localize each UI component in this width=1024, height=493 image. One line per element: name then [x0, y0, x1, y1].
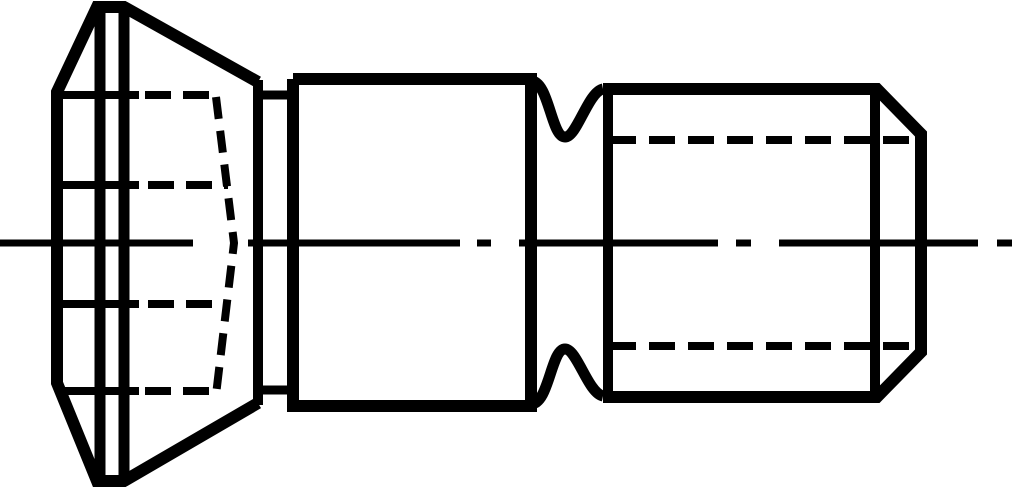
relief-groove-outline-path — [531, 349, 603, 404]
head-recess-hidden-cone-path — [216, 97, 234, 395]
head-recess-hidden-cone — [216, 97, 234, 395]
screw-side-view-drawing — [0, 0, 1024, 493]
relief-groove-outline-path — [531, 81, 603, 137]
technical-drawing-stage — [0, 0, 1024, 493]
